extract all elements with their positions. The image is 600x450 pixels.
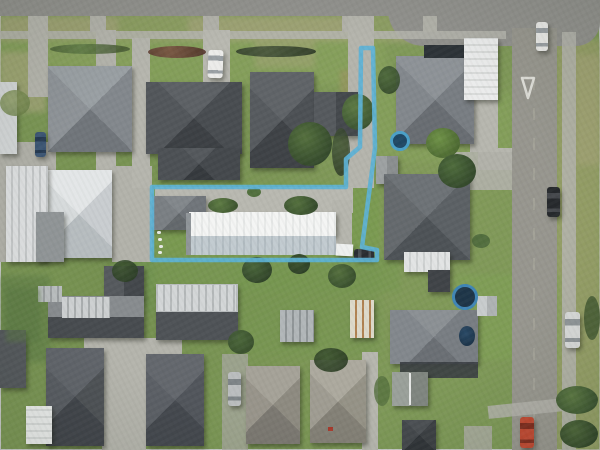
map-annotation-overlay (0, 0, 600, 450)
aerial-map-canvas[interactable] (0, 0, 600, 450)
give-way-marking-icon (522, 78, 534, 98)
parcel-boundary-highlight (152, 48, 377, 260)
